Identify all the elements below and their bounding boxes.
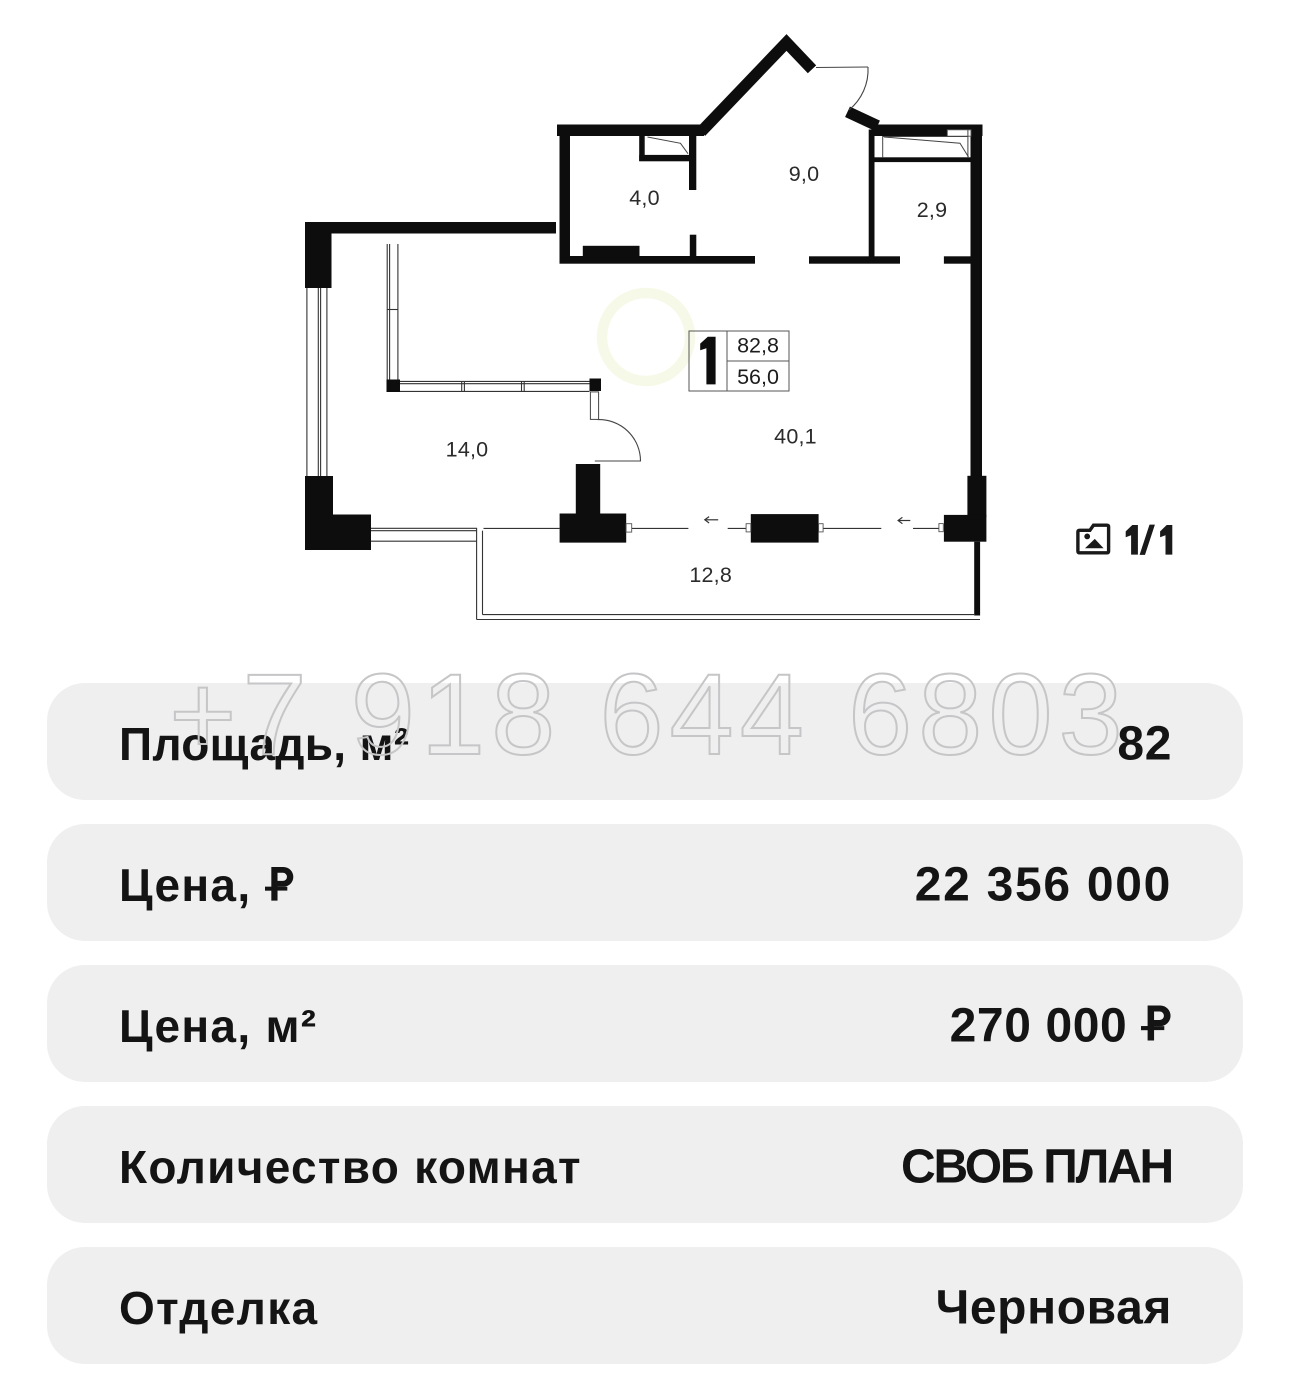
- svg-text:9,0: 9,0: [789, 162, 820, 186]
- svg-text:4,0: 4,0: [629, 186, 660, 210]
- svg-text:56,0: 56,0: [737, 365, 779, 389]
- svg-text:40,1: 40,1: [774, 425, 817, 449]
- svg-text:14,0: 14,0: [446, 438, 489, 462]
- svg-text:2,9: 2,9: [917, 198, 948, 222]
- svg-text:+7 918 644 6803: +7 918 644 6803: [169, 655, 1129, 779]
- svg-text:12,8: 12,8: [689, 563, 732, 587]
- svg-text:82,8: 82,8: [737, 334, 779, 358]
